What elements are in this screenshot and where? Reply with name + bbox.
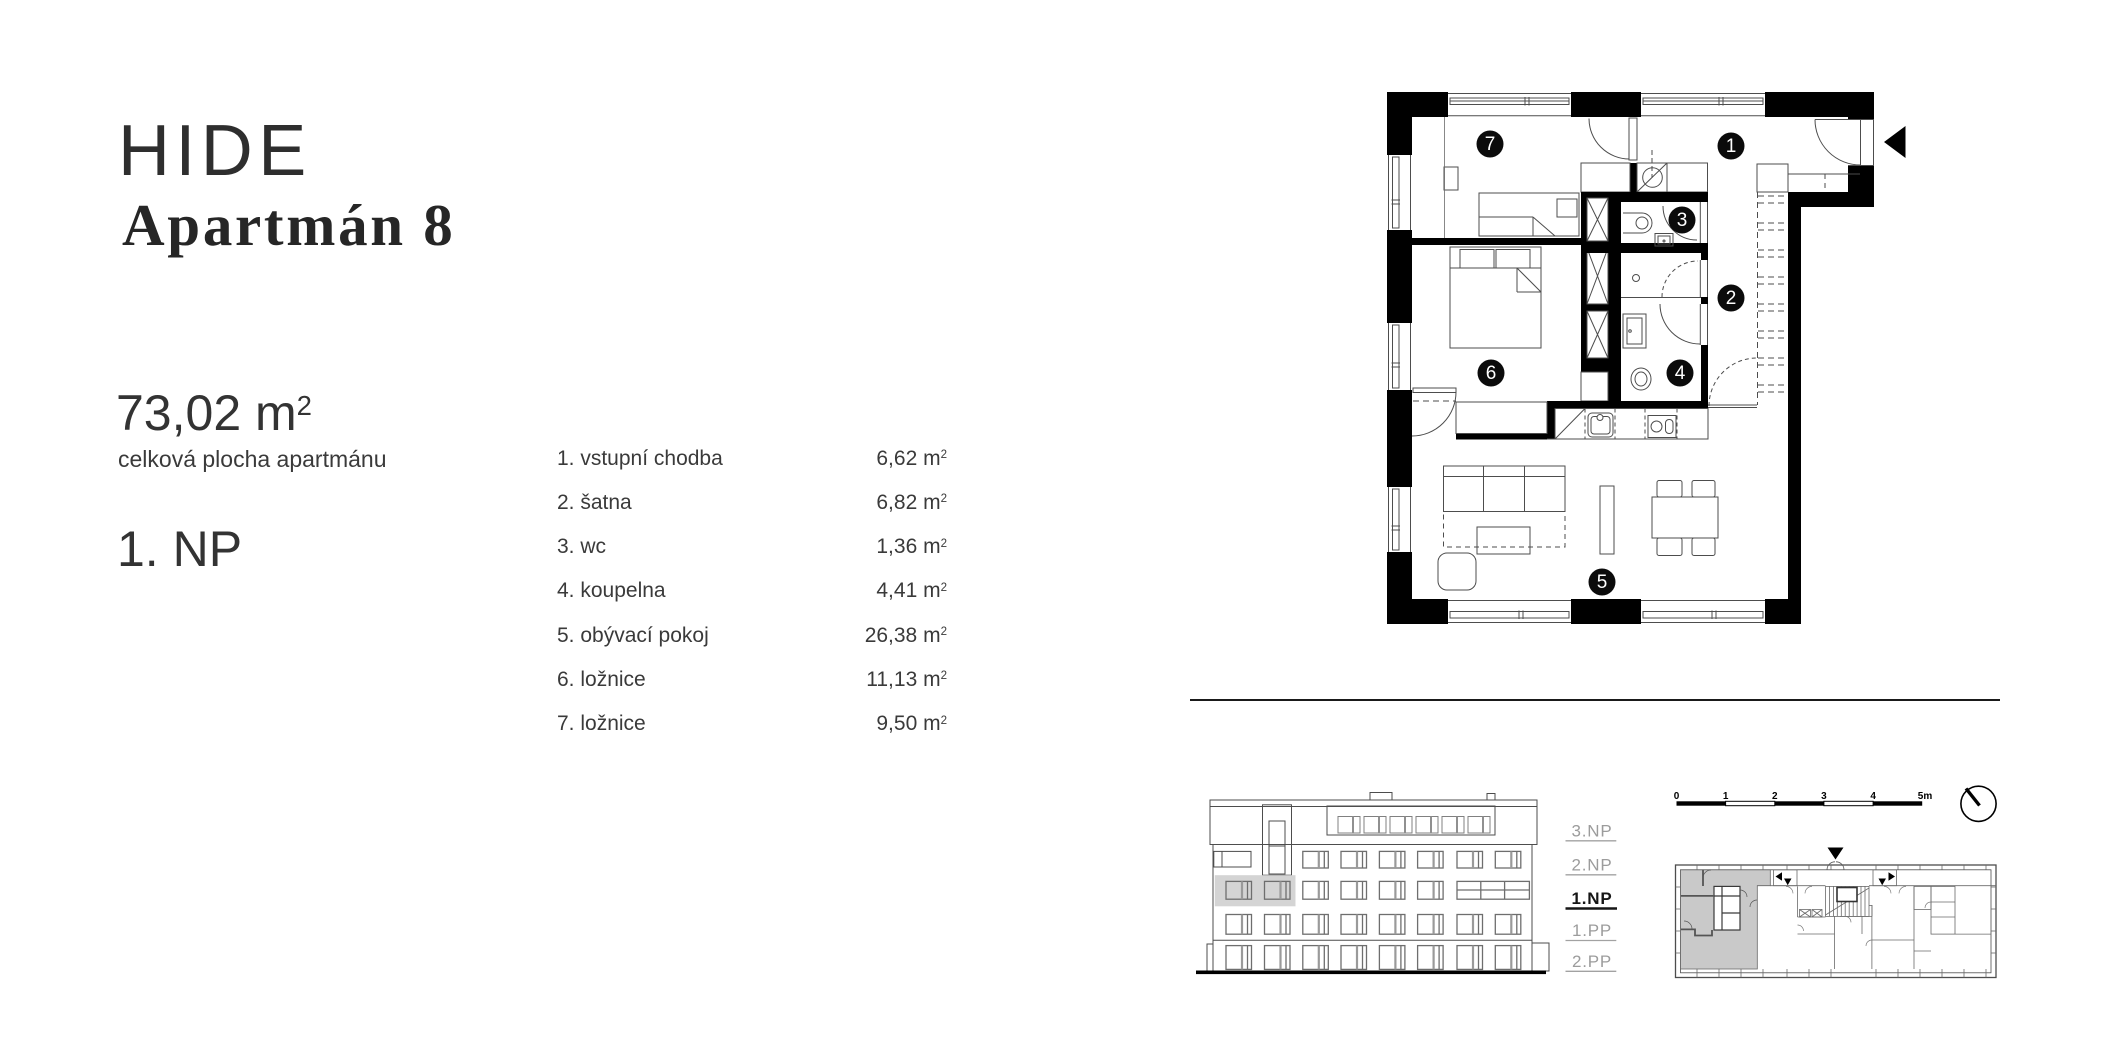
svg-text:3: 3 xyxy=(1677,210,1688,231)
svg-text:7: 7 xyxy=(1485,134,1496,155)
svg-text:1: 1 xyxy=(1726,136,1737,157)
svg-text:1.PP: 1.PP xyxy=(1572,921,1612,940)
svg-text:3.NP: 3.NP xyxy=(1572,822,1613,841)
svg-text:5m: 5m xyxy=(1918,791,1933,802)
svg-text:3: 3 xyxy=(1821,791,1827,802)
svg-text:4: 4 xyxy=(1675,363,1686,384)
svg-text:2.NP: 2.NP xyxy=(1572,856,1613,875)
svg-text:2.PP: 2.PP xyxy=(1572,952,1612,971)
svg-text:0: 0 xyxy=(1674,791,1680,802)
svg-text:4: 4 xyxy=(1870,791,1876,802)
svg-text:6: 6 xyxy=(1486,363,1497,384)
svg-text:2: 2 xyxy=(1726,288,1737,309)
svg-text:1: 1 xyxy=(1723,791,1729,802)
svg-text:2: 2 xyxy=(1772,791,1778,802)
svg-text:1.NP: 1.NP xyxy=(1572,889,1613,908)
svg-text:5: 5 xyxy=(1597,572,1608,593)
